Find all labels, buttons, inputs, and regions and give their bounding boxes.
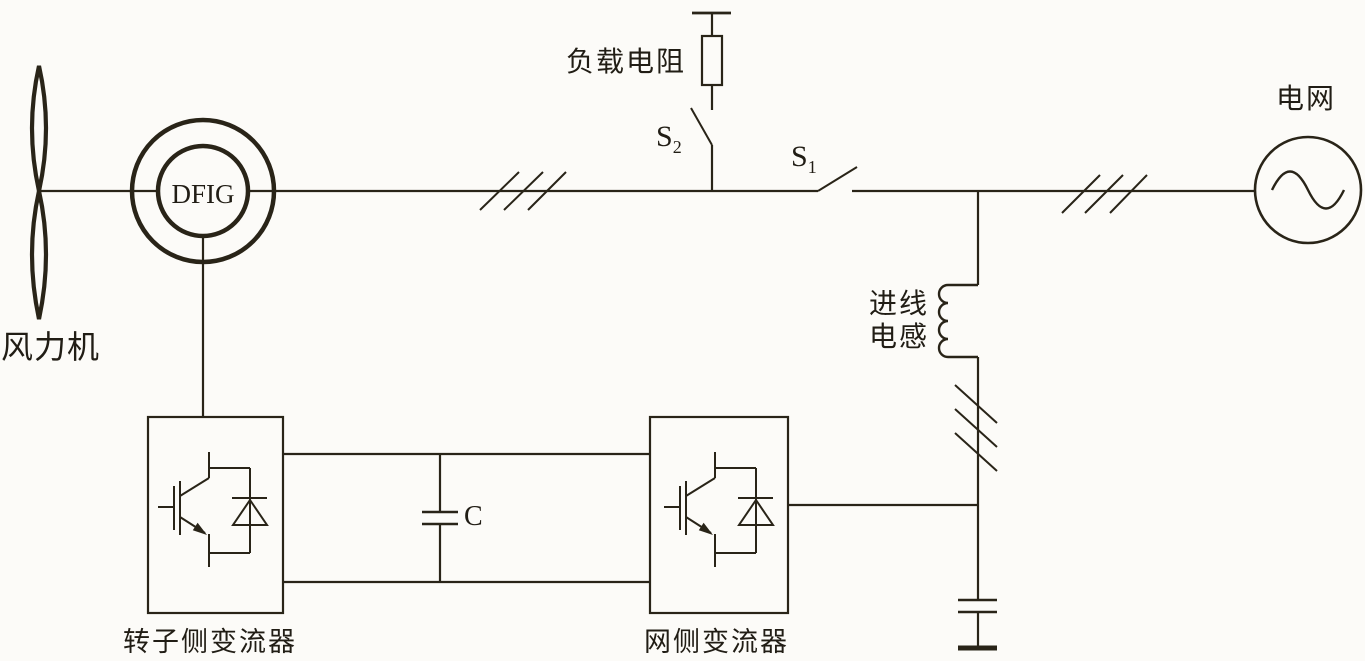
line-inductor-label: 进线 电感	[869, 288, 929, 354]
line-inductor-label-line1: 进线	[869, 288, 929, 321]
load-resistor-branch	[691, 13, 731, 191]
switch-s1-blade	[818, 167, 857, 191]
turbine-blade-top	[32, 66, 46, 191]
load-resistor-icon	[702, 36, 722, 85]
turbine-blade-bottom	[32, 191, 46, 319]
switch-s1-subscript: 1	[808, 157, 817, 177]
grid-sine-wave	[1272, 172, 1344, 209]
load-resistor-label: 负载电阻	[566, 47, 686, 79]
generator-label: DFIG	[163, 179, 243, 210]
switch-s2-label: S2	[656, 120, 682, 155]
switch-s1-letter: S	[791, 140, 808, 173]
switch-s2-blade	[691, 108, 712, 145]
filter-capacitor-icon	[958, 600, 997, 612]
rotor-side-converter-label: 转子侧变流器	[123, 627, 297, 658]
switch-s2-subscript: 2	[673, 137, 682, 157]
grid-label: 电网	[1276, 84, 1336, 116]
wind-turbine-label: 风力机	[1, 329, 100, 366]
dfig-wind-system-schematic: 风力机 DFIG 负载电阻 S2 S1 电网 进线 电感 C 转子侧变流器 网侧…	[0, 0, 1365, 661]
wind-turbine-icon	[32, 66, 158, 319]
dc-capacitor-label: C	[464, 501, 483, 533]
three-phase-marks-right	[1062, 175, 1147, 213]
switch-s2-letter: S	[656, 120, 673, 153]
switch-s1-label: S1	[791, 140, 817, 175]
dc-capacitor-icon	[422, 454, 458, 582]
grid-source-icon	[1255, 137, 1361, 243]
grid-side-converter-label: 网侧变流器	[644, 627, 789, 658]
line-inductor-icon	[939, 285, 978, 357]
line-inductor-branch	[939, 191, 997, 648]
igbt-diode-icon-grid	[664, 452, 773, 567]
three-phase-marks-vertical	[955, 385, 997, 471]
line-inductor-label-line2: 电感	[869, 321, 929, 354]
circuit-drawing	[0, 0, 1365, 661]
rotor-side-converter-box	[148, 417, 283, 613]
igbt-diode-icon-rotor	[158, 452, 267, 567]
